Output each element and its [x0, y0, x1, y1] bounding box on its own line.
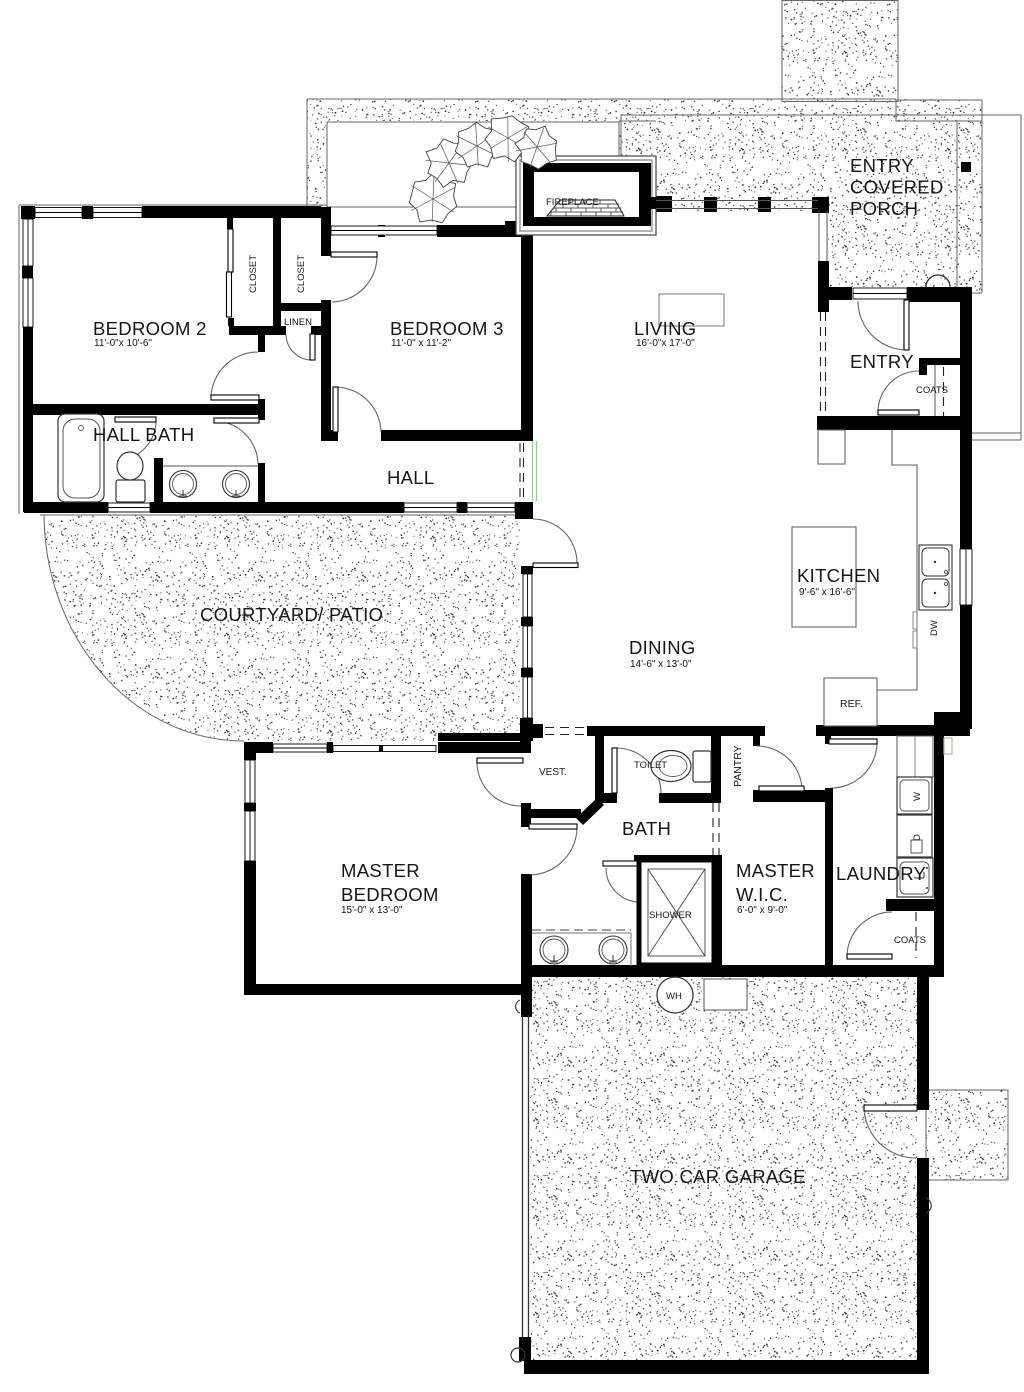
svg-text:LINEN: LINEN: [284, 317, 312, 328]
svg-text:ENTRY: ENTRY: [850, 155, 914, 176]
svg-text:HALL: HALL: [387, 467, 434, 488]
svg-text:BEDROOM: BEDROOM: [341, 884, 439, 905]
svg-text:6'-0" x 9'-0": 6'-0" x 9'-0": [737, 905, 788, 916]
svg-text:CLOSET: CLOSET: [248, 255, 259, 293]
svg-text:COATS: COATS: [894, 935, 926, 946]
svg-text:15'-0" x 13'-0": 15'-0" x 13'-0": [341, 905, 403, 916]
svg-text:MASTER: MASTER: [341, 860, 420, 881]
svg-text:11'-0" x 11'-2": 11'-0" x 11'-2": [391, 338, 451, 349]
svg-text:ENTRY: ENTRY: [850, 351, 914, 372]
svg-text:LAUNDRY: LAUNDRY: [836, 863, 926, 884]
svg-text:W: W: [912, 792, 923, 801]
svg-text:COATS: COATS: [916, 385, 948, 396]
svg-text:PORCH: PORCH: [850, 198, 918, 219]
svg-text:MASTER: MASTER: [736, 860, 815, 881]
svg-text:TOILET: TOILET: [634, 760, 667, 771]
svg-text:BEDROOM 3: BEDROOM 3: [390, 318, 504, 339]
svg-text:COVERED: COVERED: [850, 177, 944, 198]
svg-text:FIREPLACE: FIREPLACE: [546, 197, 599, 208]
svg-text:REF.: REF.: [840, 698, 863, 710]
svg-text:VEST.: VEST.: [539, 767, 567, 778]
svg-text:LIVING: LIVING: [634, 318, 696, 339]
svg-text:DINING: DINING: [629, 637, 696, 658]
svg-text:TWO CAR GARAGE: TWO CAR GARAGE: [630, 1166, 806, 1187]
svg-text:16'-0"x 17'-0": 16'-0"x 17'-0": [636, 338, 695, 349]
svg-text:PANTRY: PANTRY: [732, 745, 744, 787]
svg-text:BEDROOM 2: BEDROOM 2: [93, 318, 207, 339]
svg-text:D: D: [912, 834, 923, 841]
svg-text:WH: WH: [666, 991, 682, 1002]
svg-text:14'-6" x 13'-0": 14'-6" x 13'-0": [630, 659, 692, 670]
svg-text:BATH: BATH: [622, 818, 671, 839]
svg-text:CLOSET: CLOSET: [296, 255, 307, 293]
svg-text:HALL BATH: HALL BATH: [93, 424, 194, 445]
svg-text:DW: DW: [929, 620, 940, 636]
svg-text:W.I.C.: W.I.C.: [736, 884, 788, 905]
svg-text:KITCHEN: KITCHEN: [797, 565, 880, 586]
svg-text:SHOWER: SHOWER: [649, 910, 692, 921]
svg-text:COURTYARD/ PATIO: COURTYARD/ PATIO: [200, 604, 383, 625]
svg-text:9'-6" x 16'-6": 9'-6" x 16'-6": [799, 587, 855, 598]
svg-text:11'-0"x 10'-6": 11'-0"x 10'-6": [94, 338, 152, 349]
